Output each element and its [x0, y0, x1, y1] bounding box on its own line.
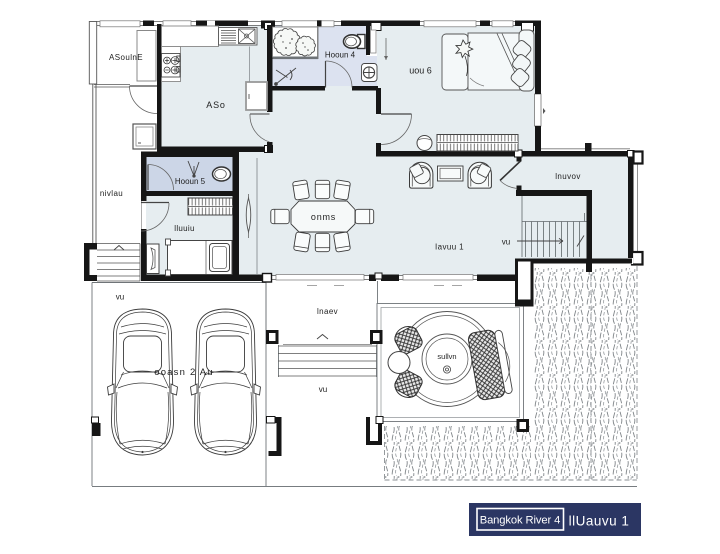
svg-text:onms: onms	[311, 212, 336, 222]
svg-text:nivlau: nivlau	[100, 189, 123, 198]
svg-text:lluuiu: lluuiu	[174, 224, 194, 233]
svg-text:Hooun 5: Hooun 5	[175, 177, 206, 186]
svg-text:vu: vu	[319, 385, 327, 394]
svg-text:uou 6: uou 6	[409, 66, 432, 76]
svg-text:Iavuu 1: Iavuu 1	[435, 243, 464, 252]
svg-text:ooasn 2 Au: ooasn 2 Au	[154, 367, 214, 378]
svg-text:lnuvov: lnuvov	[555, 172, 581, 181]
svg-text:sullvn: sullvn	[437, 352, 456, 361]
svg-text:Hooun 4: Hooun 4	[325, 51, 356, 60]
svg-text:ASoulnE: ASoulnE	[109, 53, 143, 62]
svg-text:lnaev: lnaev	[317, 307, 338, 316]
svg-text:Bangkok River 4: Bangkok River 4	[480, 515, 561, 527]
svg-text:ASo: ASo	[206, 100, 225, 110]
svg-text:vu: vu	[116, 293, 124, 302]
svg-text:llUauvu 1: llUauvu 1	[569, 514, 630, 529]
svg-text:vu: vu	[502, 238, 510, 247]
